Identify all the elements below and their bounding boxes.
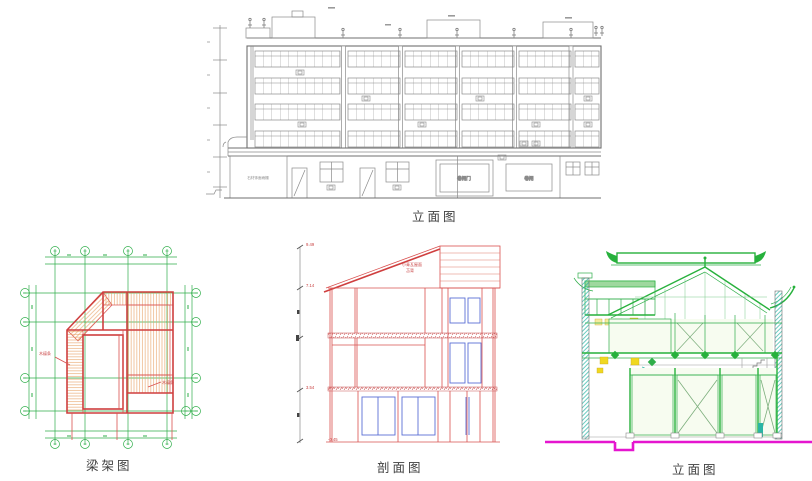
- top-elevation-caption: 立面图: [412, 206, 459, 225]
- ground-line: [545, 442, 812, 450]
- shutter-label: 卷闸: [524, 175, 534, 182]
- canopy-note: 石材饰面雨棚: [247, 175, 269, 180]
- floor-slab-upper: [328, 333, 497, 338]
- shutter-door-opening: 卷闸门: [436, 160, 493, 196]
- level-mark-1: 9.49: [306, 242, 315, 247]
- section-structure: [326, 288, 500, 442]
- section-drawing: 9.49 7.14 3.54 -0.45 小青瓦屋面 苫背: [270, 235, 525, 455]
- shutter-opening: 卷闸: [502, 158, 558, 196]
- shutter-door-label: 卷闸门: [457, 175, 471, 182]
- floor-slab-lower: [328, 387, 497, 391]
- section-windows: [362, 298, 481, 435]
- ridge-ornament: [606, 251, 766, 265]
- section-svg: 9.49 7.14 3.54 -0.45 小青瓦屋面 苫背: [270, 235, 525, 455]
- roof-note-line2: 苫背: [406, 267, 414, 273]
- right-elevation-drawing: [545, 235, 812, 457]
- framing-plan-drawing: 木檩条 木檩条: [15, 235, 245, 455]
- upper-storey: [585, 313, 782, 353]
- roof-finials: [248, 18, 604, 38]
- top-elevation-svg: 石材饰面雨棚 卷闸门: [180, 0, 640, 204]
- leader-left-label: 木檩条: [39, 350, 51, 356]
- right-elevation-caption: 立面图: [672, 459, 719, 478]
- canopy: [228, 137, 247, 156]
- framing-plan-svg: 木檩条 木檩条: [15, 235, 245, 455]
- top-elevation-drawing: 石材饰面雨棚 卷闸门: [180, 0, 640, 204]
- roof-note-line1: 小青瓦屋面: [402, 261, 422, 267]
- level-mark-3: 3.54: [306, 385, 315, 390]
- facade: [247, 46, 601, 148]
- lower-storey: [582, 353, 782, 438]
- section-roof: 小青瓦屋面 苫背: [324, 246, 500, 292]
- window-bands: [255, 51, 599, 147]
- roof-parapet: [246, 7, 604, 46]
- framing-plan-caption: 梁架图: [86, 455, 133, 474]
- leader-right-label: 木檩条: [162, 379, 174, 385]
- level-mark-4: -0.45: [328, 437, 338, 442]
- ground-floor: 石材饰面雨棚 卷闸门: [224, 155, 601, 198]
- page: 石材饰面雨棚 卷闸门: [0, 0, 812, 481]
- level-mark-2: 7.14: [306, 283, 315, 288]
- right-elevation-svg: [545, 235, 812, 457]
- section-caption: 剖面图: [377, 457, 424, 476]
- dimension-ladder: [206, 25, 227, 198]
